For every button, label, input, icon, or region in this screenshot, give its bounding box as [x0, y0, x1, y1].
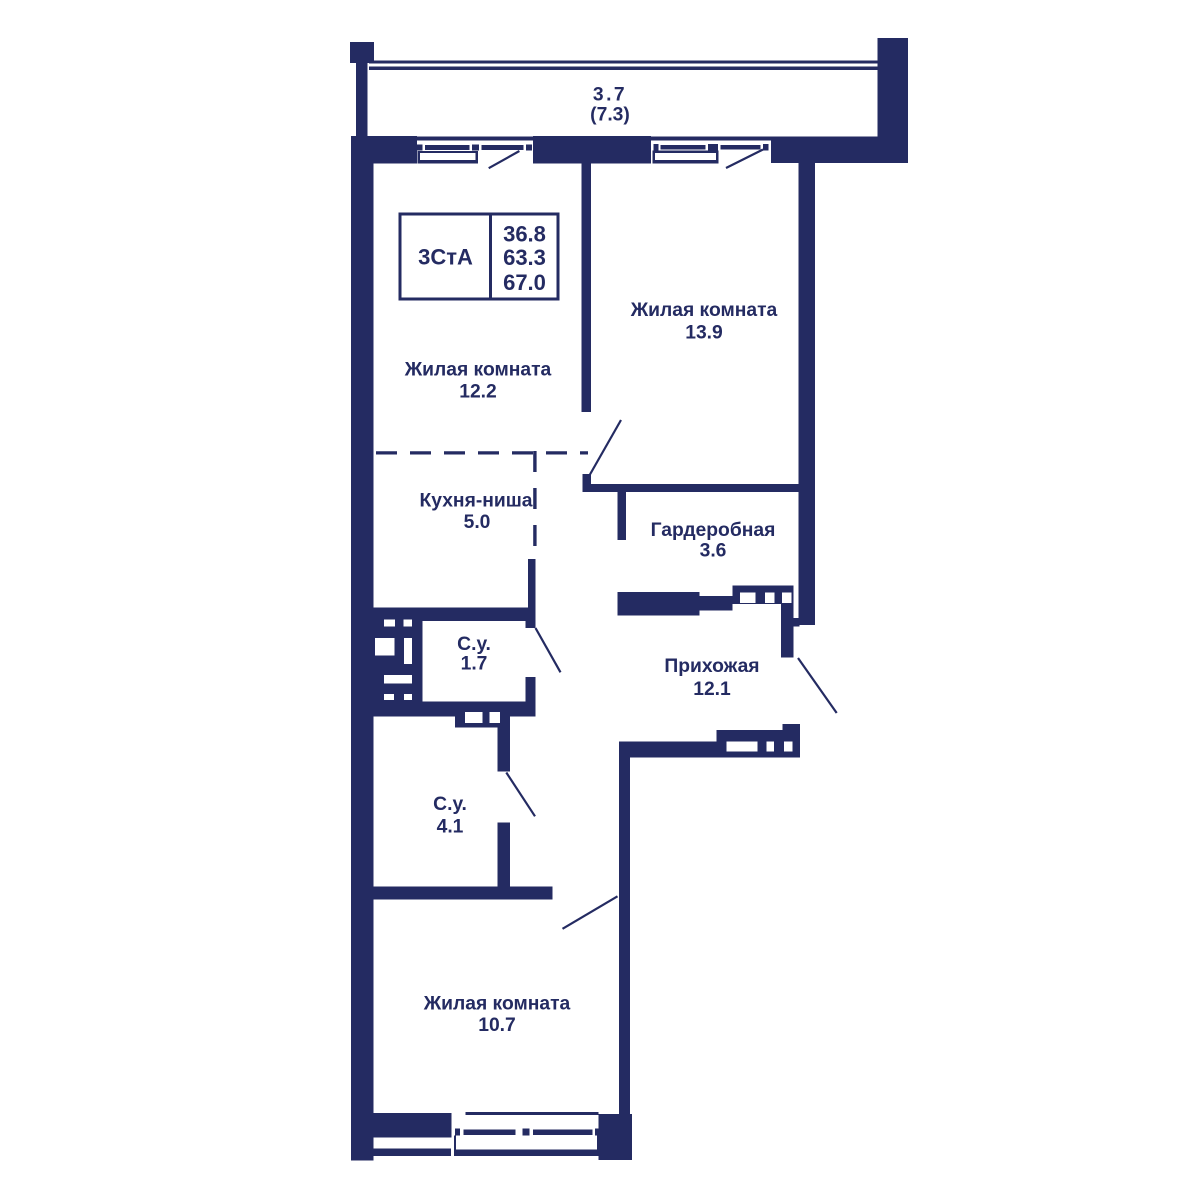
- svg-text:3.7: 3.7: [593, 85, 627, 106]
- svg-text:Прихожая: Прихожая: [664, 656, 759, 677]
- svg-text:4.1: 4.1: [437, 817, 464, 838]
- svg-text:Кухня-ниша: Кухня-ниша: [419, 491, 532, 512]
- svg-text:Жилая комната: Жилая комната: [404, 360, 552, 381]
- svg-text:5.0: 5.0: [464, 512, 491, 533]
- svg-text:С.у.: С.у.: [457, 634, 491, 655]
- svg-text:10.7: 10.7: [478, 1015, 516, 1036]
- svg-text:3СтА: 3СтА: [418, 245, 473, 270]
- svg-text:12.2: 12.2: [459, 382, 497, 403]
- svg-text:67.0: 67.0: [503, 270, 546, 295]
- svg-text:С.у.: С.у.: [433, 794, 467, 815]
- svg-text:(7.3): (7.3): [590, 105, 630, 126]
- svg-text:1.7: 1.7: [461, 654, 488, 675]
- svg-text:12.1: 12.1: [693, 679, 731, 700]
- svg-text:Гардеробная: Гардеробная: [651, 520, 776, 541]
- svg-text:36.8: 36.8: [503, 222, 546, 247]
- svg-text:63.3: 63.3: [503, 245, 546, 270]
- svg-text:3.6: 3.6: [700, 541, 727, 562]
- svg-text:Жилая комната: Жилая комната: [630, 300, 778, 321]
- svg-text:Жилая комната: Жилая комната: [423, 994, 571, 1015]
- svg-text:13.9: 13.9: [685, 323, 723, 344]
